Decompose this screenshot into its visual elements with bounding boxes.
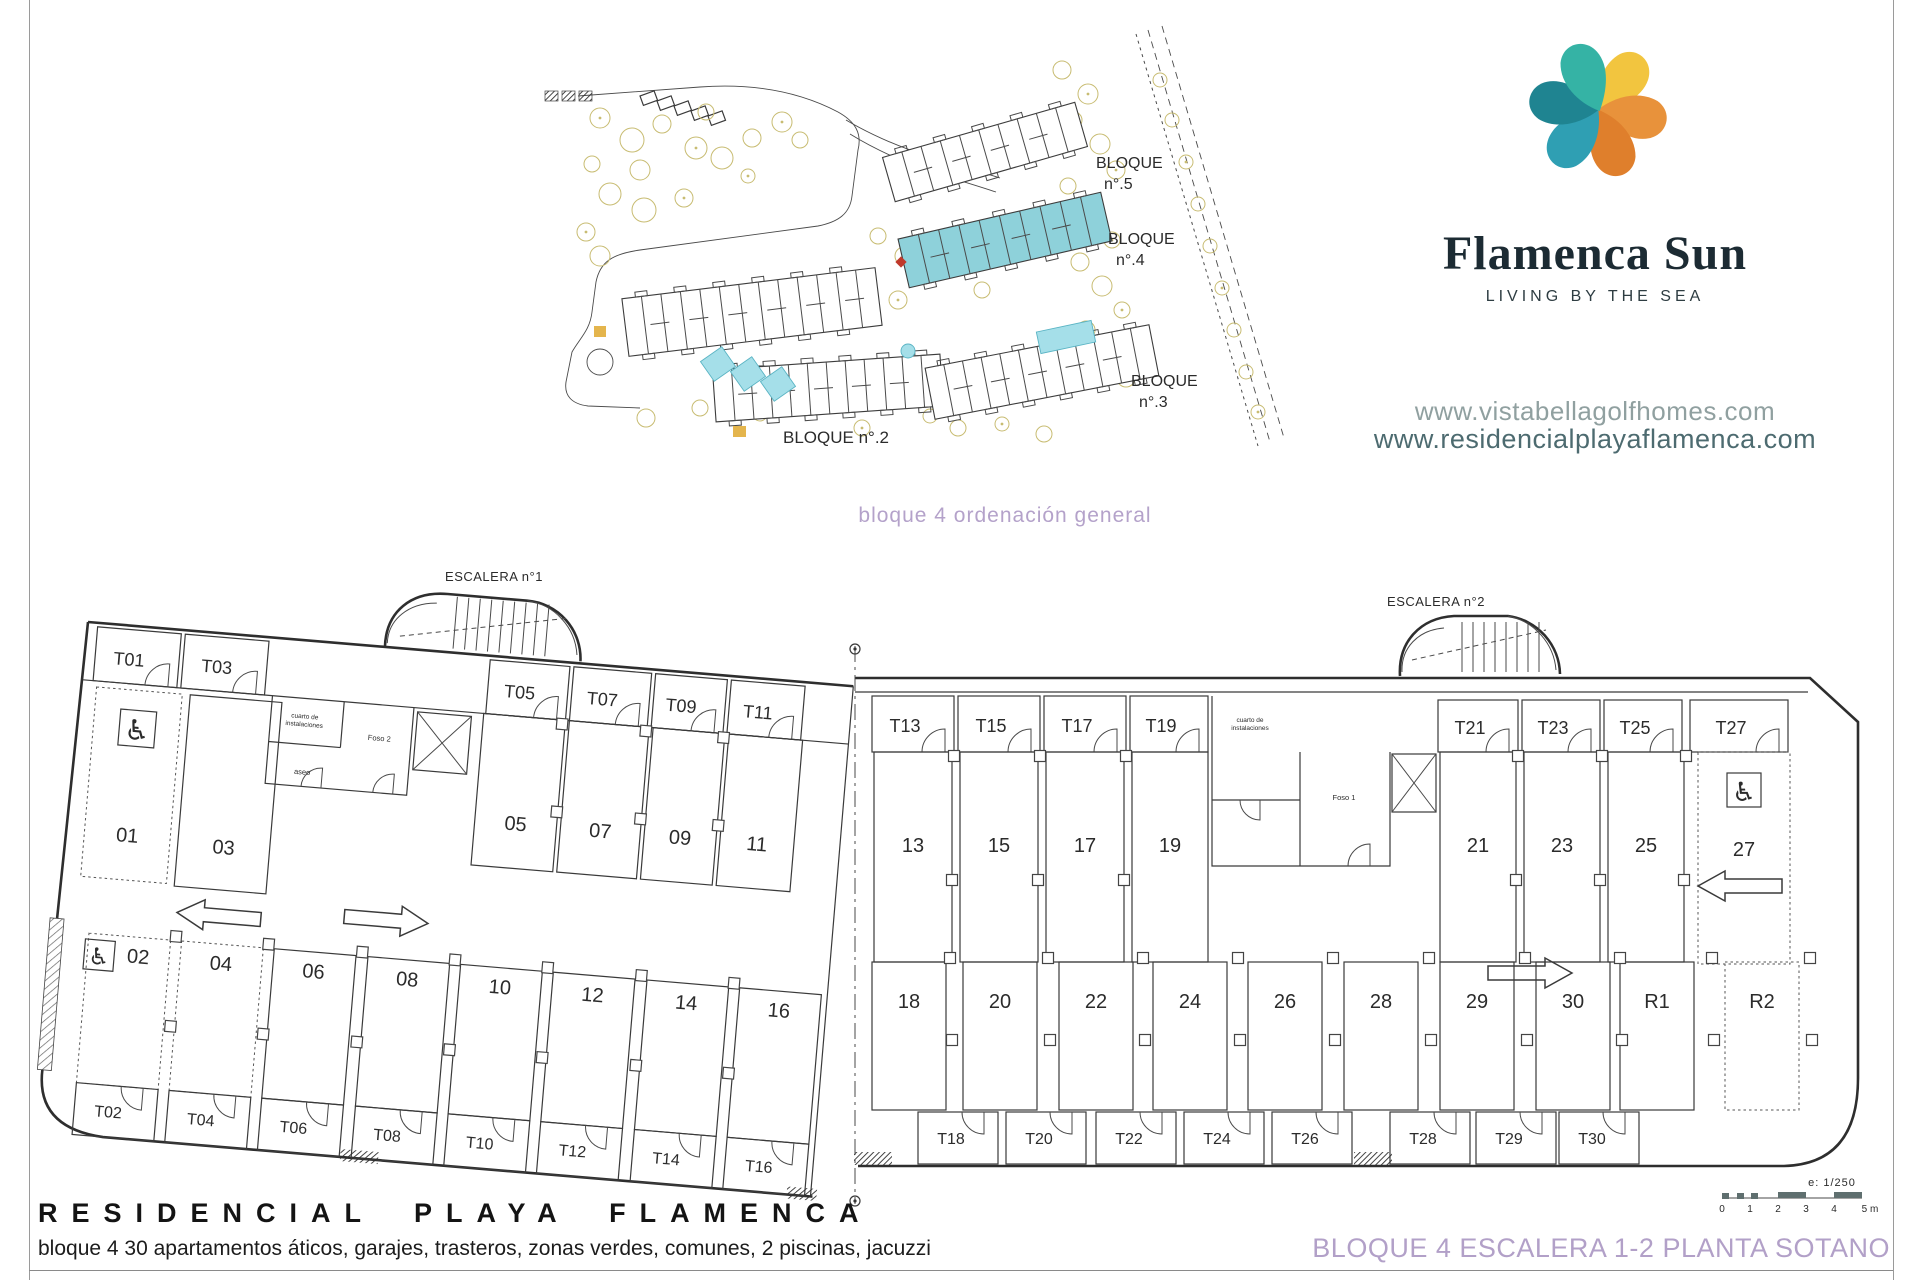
parking-space-20: 20 (989, 991, 1011, 1013)
parking-space-28: 28 (1370, 991, 1392, 1013)
wheelchair-icon: ♿ (1732, 777, 1756, 807)
storage-label-T03: T03 (200, 656, 233, 679)
tree-icon (1092, 276, 1112, 296)
storage-label-T15: T15 (975, 716, 1006, 736)
parking-space-11: 11 (745, 833, 768, 857)
storage-label-T08: T08 (373, 1127, 402, 1146)
storage-label-T16: T16 (744, 1158, 773, 1177)
parking-space-03: 03 (212, 836, 236, 860)
parking-space-08: 08 (395, 968, 419, 992)
flamenca-sun-logo (1520, 34, 1680, 184)
tree-icon (584, 156, 600, 172)
tree-icon (1071, 253, 1089, 271)
tree-icon (1191, 197, 1205, 211)
tree-icon (590, 246, 610, 266)
site-block (621, 263, 882, 362)
scale-bar: e: 1/250012345 m (1719, 1177, 1878, 1215)
parking-space-02: 02 (126, 945, 150, 969)
website-url-1: www.vistabellagolfhomes.com (1280, 396, 1910, 427)
storage-label-T04: T04 (186, 1111, 215, 1130)
stair-label: ESCALERA n°2 (1387, 594, 1485, 609)
storage-label-T10: T10 (465, 1134, 494, 1153)
stair-label: ESCALERA n°1 (445, 569, 543, 584)
parking-space-27: 27 (1733, 839, 1755, 861)
parking-space-05: 05 (504, 813, 528, 837)
retaining-wall-hatch (37, 918, 64, 1071)
utility-note: Foso 1 (1333, 793, 1356, 802)
parking-space-24: 24 (1179, 991, 1201, 1013)
storage-label-T22: T22 (1115, 1131, 1143, 1148)
floor-plan: T01T03T05T07T09T11cuarto deinstalaciones… (32, 563, 1858, 1206)
site-block-label: BLOQUEn°.3 (1131, 373, 1198, 411)
parking-space-26: 26 (1274, 991, 1296, 1013)
parking-space-04: 04 (209, 952, 233, 976)
parking-space-29: 29 (1466, 991, 1488, 1013)
parking-space-14: 14 (674, 992, 698, 1016)
parking-space-15: 15 (988, 835, 1010, 857)
utility-note: aseo (294, 767, 311, 777)
scale-label: e: 1/250 (1808, 1177, 1856, 1189)
storage-label-T07: T07 (586, 688, 619, 711)
tree-icon (632, 198, 656, 222)
parking-space-09: 09 (668, 826, 692, 850)
storage-label-T05: T05 (503, 681, 536, 704)
tree-icon (711, 147, 733, 169)
storage-label-T12: T12 (558, 1142, 587, 1161)
tree-icon (1203, 239, 1217, 253)
storage-label-T25: T25 (1619, 718, 1650, 738)
aisle-direction-arrow (176, 898, 262, 935)
tree-icon (1053, 61, 1071, 79)
tree-icon (1165, 113, 1179, 127)
aisle-direction-arrow (1698, 871, 1782, 901)
tree-icon (637, 409, 655, 427)
tree-icon (1239, 365, 1253, 379)
parking-space-10: 10 (488, 976, 512, 1000)
tree-icon (743, 129, 761, 147)
storage-label-T21: T21 (1454, 718, 1485, 738)
storage-label-T26: T26 (1291, 1131, 1319, 1148)
parking-space-01: 01 (115, 824, 139, 848)
site-block-label: BLOQUEn°.5 (1096, 155, 1163, 193)
tree-icon (1153, 73, 1167, 87)
storage-label-T01: T01 (113, 648, 146, 671)
project-description: bloque 4 30 apartamentos áticos, garajes… (38, 1237, 1138, 1261)
storage-label-T23: T23 (1537, 718, 1568, 738)
scale-tick: 0 (1719, 1204, 1725, 1215)
storage-label-T19: T19 (1145, 716, 1176, 736)
website-url-2: www.residencialplayaflamenca.com (1280, 424, 1910, 455)
site-block (897, 187, 1113, 292)
storage-label-T20: T20 (1025, 1131, 1053, 1148)
site-plan: BLOQUE n°.1BLOQUE n°.2BLOQUEn°.3BLOQUEn°… (545, 26, 1284, 447)
tree-icon (950, 420, 966, 436)
parking-space-12: 12 (581, 984, 605, 1008)
parking-space-06: 06 (301, 960, 325, 984)
site-plan-caption: bloque 4 ordenación general (800, 504, 1210, 528)
amenity-marker (733, 426, 746, 437)
tree-icon (1227, 323, 1241, 337)
parking-space-30: 30 (1562, 991, 1584, 1013)
wheelchair-icon: ♿ (87, 943, 110, 971)
tree-icon (698, 104, 714, 120)
tree-icon (974, 282, 990, 298)
scale-tick: 5 m (1862, 1204, 1879, 1215)
storage-label-T06: T06 (279, 1119, 308, 1138)
storage-label-T27: T27 (1715, 718, 1746, 738)
parking-space-22: 22 (1085, 991, 1107, 1013)
utility-note: cuarto deinstalaciones (285, 712, 324, 730)
drawing-title: BLOQUE 4 ESCALERA 1-2 PLANTA SOTANO (1100, 1233, 1890, 1264)
parking-space-17: 17 (1074, 835, 1096, 857)
parking-space-07: 07 (588, 820, 612, 844)
parking-space-18: 18 (898, 991, 920, 1013)
utility-note: cuarto deinstalaciones (1231, 717, 1269, 732)
tree-icon (692, 400, 708, 416)
parking-space-21: 21 (1467, 835, 1489, 857)
parking-space-23: 23 (1551, 835, 1573, 857)
tree-icon (620, 128, 644, 152)
storage-label-T13: T13 (889, 716, 920, 736)
storage-label-T29: T29 (1495, 1131, 1523, 1148)
scale-tick: 3 (1803, 1204, 1809, 1215)
tree-icon (1036, 426, 1052, 442)
storage-label-T30: T30 (1578, 1131, 1606, 1148)
amenity-marker (594, 326, 606, 337)
tree-icon (653, 115, 671, 133)
plan-sheet: BLOQUE n°.1BLOQUE n°.2BLOQUEn°.3BLOQUEn°… (0, 0, 1920, 1280)
tree-icon (630, 160, 650, 180)
parking-space-19: 19 (1159, 835, 1181, 857)
storage-label-T18: T18 (937, 1131, 965, 1148)
drawing-area: BLOQUE n°.1BLOQUE n°.2BLOQUEn°.3BLOQUEn°… (0, 0, 1920, 1280)
tree-icon (1090, 134, 1110, 154)
storage-label-T17: T17 (1061, 716, 1092, 736)
site-block-label: BLOQUEn°.4 (1108, 231, 1175, 269)
storage-label-T09: T09 (665, 695, 698, 718)
storage-label-T11: T11 (742, 701, 773, 723)
parking-space-16: 16 (767, 999, 791, 1023)
parking-space-R2: R2 (1749, 991, 1775, 1013)
utility-note: Foso 2 (367, 733, 391, 744)
site-block-label: BLOQUE n°.2 (783, 428, 889, 447)
storage-label-T24: T24 (1203, 1131, 1231, 1148)
storage-label-T14: T14 (652, 1150, 681, 1169)
parking-space-25: 25 (1635, 835, 1657, 857)
wheelchair-icon: ♿ (123, 714, 151, 747)
site-block (881, 98, 1089, 207)
project-title: RESIDENCIAL PLAYA FLAMENCA (38, 1198, 1038, 1229)
tree-icon (599, 183, 621, 205)
tree-icon (792, 132, 808, 148)
aisle-direction-arrow (343, 902, 429, 939)
scale-tick: 4 (1831, 1204, 1837, 1215)
parking-space-R1: R1 (1644, 991, 1670, 1013)
scale-tick: 1 (1747, 1204, 1753, 1215)
scale-tick: 2 (1775, 1204, 1781, 1215)
storage-label-T02: T02 (94, 1103, 123, 1122)
tree-icon (1060, 178, 1076, 194)
storage-label-T28: T28 (1409, 1131, 1437, 1148)
brand-tagline: LIVING BY THE SEA (1380, 288, 1810, 306)
brand-name: Flamenca Sun (1380, 226, 1810, 281)
parking-space-13: 13 (902, 835, 924, 857)
tree-icon (870, 228, 886, 244)
